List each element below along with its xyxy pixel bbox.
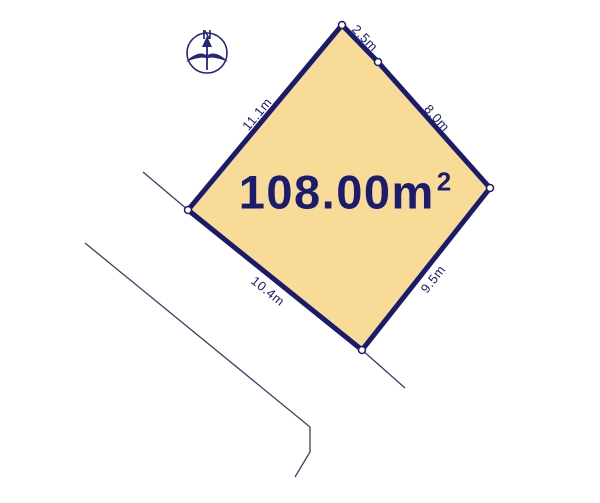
road-boundary-line-lower xyxy=(362,350,405,388)
compass-wings xyxy=(186,52,228,64)
compass-north-label: N xyxy=(202,27,211,42)
vertex-marker-left xyxy=(185,207,192,214)
area-superscript: 2 xyxy=(437,167,451,197)
area-value: 108.00 xyxy=(239,166,392,219)
vertex-marker-bottom xyxy=(359,347,366,354)
area-unit: m xyxy=(392,166,435,219)
land-plot-diagram: N 2.5m 8.0m 9.5m 10.4m 11.1m 108.00m2 xyxy=(0,0,600,503)
road-boundary-line-upper xyxy=(143,172,188,210)
vertex-marker-right xyxy=(487,185,494,192)
vertex-marker-upper-right xyxy=(375,59,382,66)
diagram-canvas: N xyxy=(0,0,600,503)
north-compass-icon: N xyxy=(186,27,228,73)
area-label: 108.00m2 xyxy=(239,165,452,220)
vertex-marker-top xyxy=(339,22,346,29)
